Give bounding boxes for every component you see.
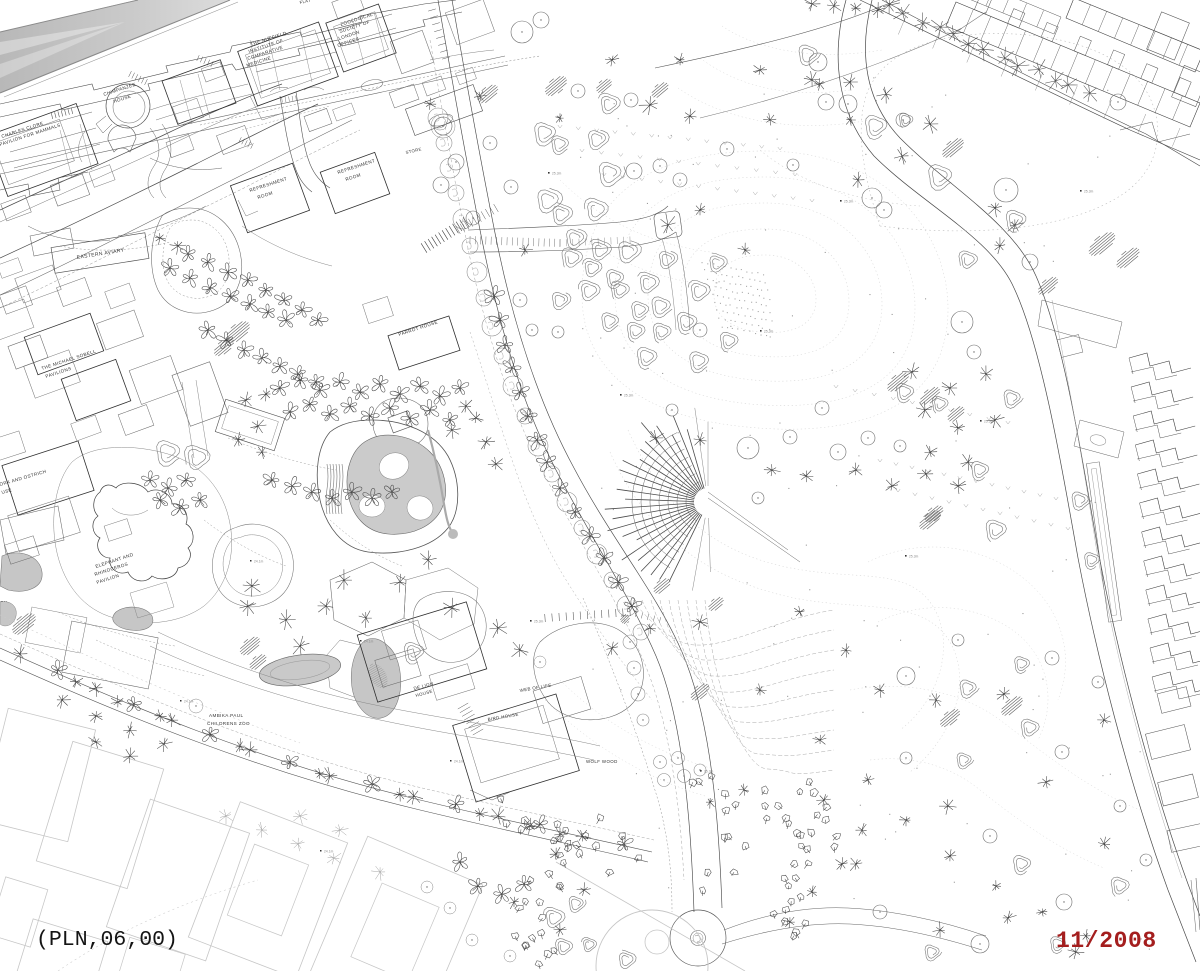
svg-text:25.3m: 25.3m: [1084, 190, 1094, 194]
svg-text:(PLN,06,00): (PLN,06,00): [36, 928, 178, 952]
svg-text:25.3m: 25.3m: [764, 330, 774, 334]
svg-text:24.1m: 24.1m: [454, 760, 464, 764]
svg-text:25.3m: 25.3m: [552, 172, 562, 176]
svg-text:AMBIKA PAUL: AMBIKA PAUL: [209, 713, 243, 718]
svg-text:24.1m: 24.1m: [254, 560, 264, 564]
svg-text:25.3m: 25.3m: [844, 200, 854, 204]
svg-text:24.1m: 24.1m: [364, 640, 374, 644]
svg-text:WOLF WOOD: WOLF WOOD: [586, 759, 618, 764]
svg-text:11/2008: 11/2008: [1056, 928, 1157, 954]
svg-text:25.3m: 25.3m: [624, 394, 634, 398]
svg-text:24.1m: 24.1m: [324, 850, 334, 854]
svg-text:24.1m: 24.1m: [184, 700, 194, 704]
svg-text:25.3m: 25.3m: [909, 555, 919, 559]
svg-text:25.3m: 25.3m: [534, 620, 544, 624]
